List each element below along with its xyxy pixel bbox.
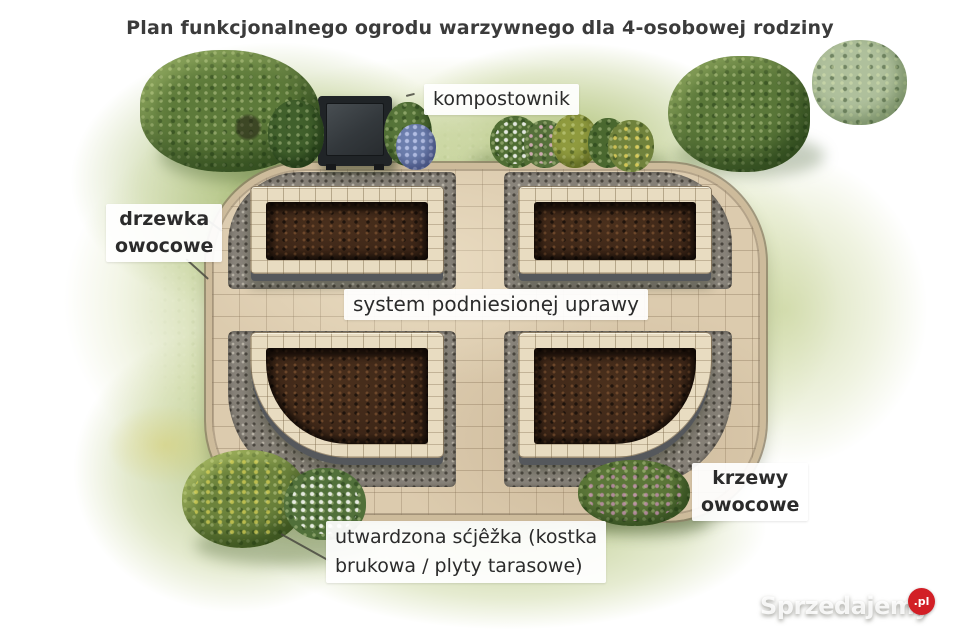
soil-top-right — [534, 202, 696, 260]
label-fruit-trees-line2: owocowe — [115, 233, 213, 260]
label-fruit-shrubs: krzewy owocowe — [692, 463, 808, 521]
label-compost: kompostownik — [424, 84, 579, 115]
label-fruit-trees-line1: drzewka — [115, 206, 213, 233]
garden-plan-illustration: Plan funkcjonalnego ogrodu warzywnego dl… — [0, 0, 960, 640]
bush-left-of-bin — [268, 100, 324, 168]
raised-bed-top-right — [518, 186, 712, 274]
compost-leader-line — [406, 93, 415, 97]
compost-bin — [318, 96, 392, 166]
compost-bin-foot — [374, 164, 384, 170]
watermark: Sprzedajemy .pl — [760, 590, 940, 630]
soil-bottom-right — [534, 348, 696, 444]
label-raised-bed-system: system podniesionęj uprawy — [344, 289, 648, 320]
pink-purple-flowers — [587, 465, 681, 520]
label-hardened-path: utwardzona sćjêžka (kostka brukowa / ply… — [326, 521, 606, 583]
fruit-tree-top-right — [668, 56, 810, 172]
hydrangea-blue — [396, 124, 436, 170]
yellow-flowers — [192, 458, 297, 540]
soil-top-left — [266, 202, 428, 260]
label-fruit-shrubs-line2: owocowe — [701, 492, 799, 519]
compost-bin-lid — [326, 103, 384, 156]
watermark-pl-badge: .pl — [908, 588, 935, 615]
label-hardened-path-line2: brukowa / plyty tarasowe) — [335, 552, 597, 581]
shrub-yellow-green — [608, 120, 654, 172]
raised-bed-top-left — [250, 186, 444, 274]
foliage-corner-top-right — [812, 40, 907, 125]
label-hardened-path-line1: utwardzona sćjêžka (kostka — [335, 523, 597, 552]
page-title: Plan funkcjonalnego ogrodu warzywnego dl… — [0, 17, 960, 39]
watermark-brand: Sprzedajemy — [760, 592, 930, 620]
bush-bottom-right — [578, 460, 690, 526]
compost-bin-foot — [326, 164, 336, 170]
soil-bottom-left — [266, 348, 428, 444]
label-fruit-trees: drzewka owocowe — [106, 204, 222, 262]
label-fruit-shrubs-line1: krzewy — [701, 465, 799, 492]
yellow-flowers — [612, 124, 651, 168]
